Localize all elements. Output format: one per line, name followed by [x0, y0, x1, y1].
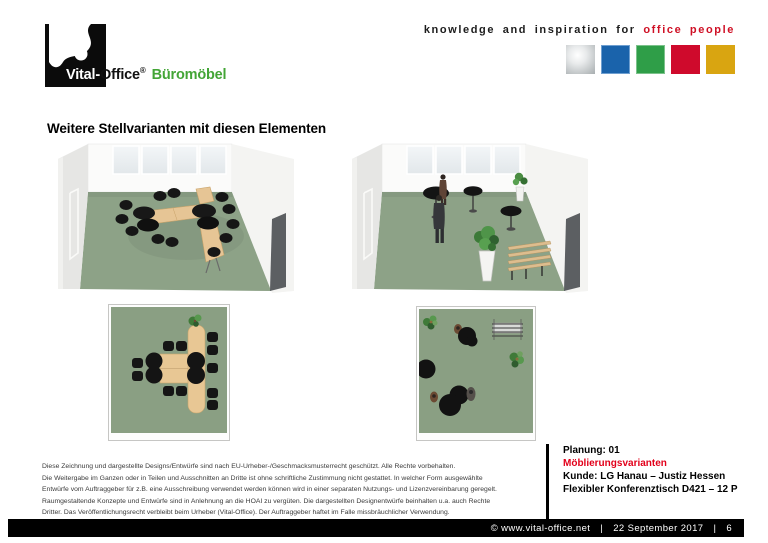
customer-label: Kunde: LG Hanau – Justiz Hessen [563, 470, 738, 483]
footer-separator: | [600, 523, 603, 534]
disclaimer-line: Dritter. Das Veröffentlichungsrecht verb… [42, 507, 547, 519]
brand-square-green [636, 45, 665, 74]
variant-label: Möblierungsvarianten [563, 457, 738, 470]
footer-separator: | [713, 523, 716, 534]
brand-square-red [671, 45, 700, 74]
legal-disclaimer: Diese Zeichnung und dargestellte Designs… [42, 461, 547, 519]
disclaimer-line: Entwürfe vom Auftraggeber für z.B. eine … [42, 484, 547, 496]
wall-column [270, 213, 286, 291]
disclaimer-line: Die Weitergabe im Ganzen oder in Teilen … [42, 473, 547, 485]
disclaimer-line: Raumgestaltende Konzepte und Entwürfe si… [42, 496, 547, 508]
document-page: Vital-Office®Büromöbel knowledge and ins… [0, 0, 768, 543]
person-plan-bottomleft [430, 392, 438, 403]
brand-square-blue [601, 45, 630, 74]
brand-square-gold [706, 45, 735, 74]
render-3d-conference-room [58, 141, 294, 301]
footer-website-link[interactable]: © www.vital-office.net [491, 523, 591, 534]
page-title: Weitere Stellvarianten mit diesen Elemen… [47, 121, 326, 136]
planning-number: Planung: 01 [563, 444, 738, 457]
person-plan-bottomright [467, 387, 476, 401]
project-info-divider [546, 444, 549, 520]
brand-name-part2: Office [100, 67, 140, 83]
footer-page-number: 6 [726, 523, 732, 534]
registered-mark: ® [140, 66, 146, 75]
floorplan-standing [416, 306, 536, 441]
disclaimer-line: Diese Zeichnung und dargestellte Designs… [42, 461, 547, 473]
brand-suffix: Büromöbel [152, 67, 227, 83]
project-info-block: Planung: 01 Möblierungsvarianten Kunde: … [563, 444, 738, 496]
footer-date: 22 September 2017 [613, 523, 703, 534]
footer-bar: © www.vital-office.net | 22 September 20… [8, 519, 744, 537]
wall-column [564, 213, 580, 291]
product-label: Flexibler Konferenztisch D421 – 12 P [563, 483, 738, 496]
tagline-red: office people [643, 24, 735, 36]
brand-color-squares [566, 45, 735, 74]
floorplan-conference-drawing [111, 307, 227, 433]
floorplan-standing-drawing [419, 309, 533, 433]
floorplan-conference [108, 304, 230, 441]
brand-name-part1: Vital- [66, 67, 100, 83]
brand-wordmark: Vital-Office®Büromöbel [66, 66, 226, 83]
tagline-black: knowledge and inspiration for [424, 24, 636, 36]
render-3d-standing-room [352, 141, 588, 301]
company-tagline: knowledge and inspiration for office peo… [424, 24, 735, 36]
brand-square-silver [566, 45, 595, 74]
